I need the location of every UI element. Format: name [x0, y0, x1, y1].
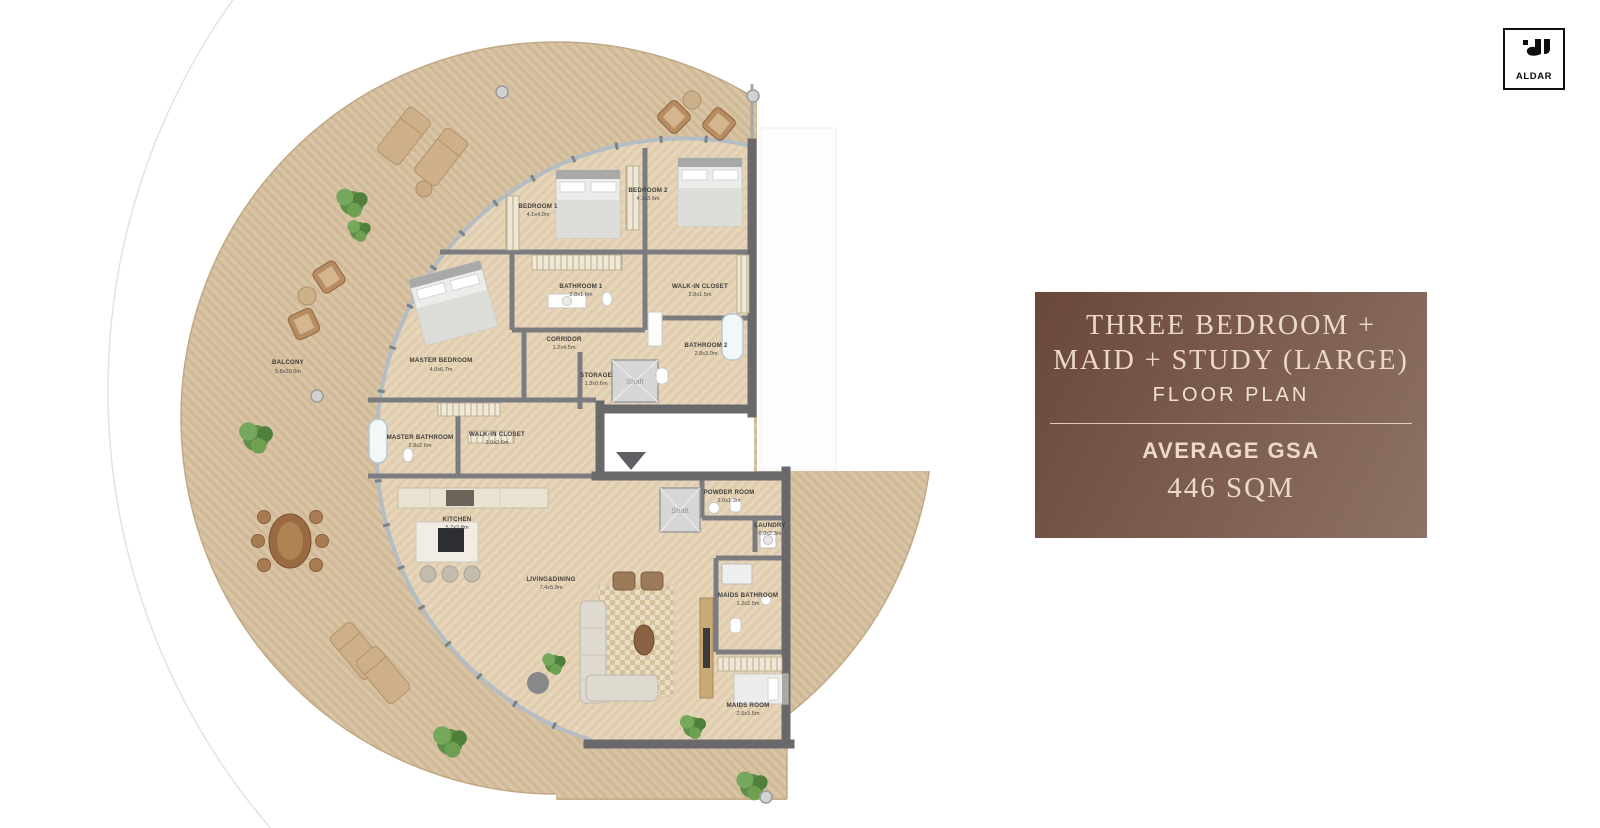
label-bedroom-2: BEDROOM 2: [628, 187, 668, 194]
label-kitchen: KITCHEN: [443, 516, 472, 523]
label-maids-bathroom: MAIDS BATHROOM: [718, 592, 778, 599]
dims-powder-room: 2.0x1.3m: [717, 498, 740, 504]
plan-subtitle: FLOOR PLAN: [1035, 384, 1427, 407]
label-master-bedroom: MASTER BEDROOM: [410, 357, 473, 364]
label-bathroom-2: BATHROOM 2: [684, 342, 727, 349]
gsa-value: 446 SQM: [1035, 472, 1427, 505]
plan-title-line2: MAID + STUDY (LARGE): [1035, 343, 1427, 378]
panel-divider: [1050, 423, 1412, 424]
dims-maids-room: 2.5x3.5m: [736, 711, 759, 717]
dims-bathroom-2: 2.8x3.0m: [694, 351, 717, 357]
entrance-notch: [602, 411, 754, 473]
ghosted-core-outline: [760, 128, 836, 470]
dims-master-bedroom: 4.0x6.7m: [429, 367, 452, 373]
balcony-dining-set: [252, 511, 329, 572]
aldar-wordmark: ALDAR: [1505, 71, 1563, 82]
aldar-logomark-icon: [1515, 37, 1553, 65]
shaft-lower-label: Shaft: [671, 506, 689, 515]
page: Shaft Shaft: [0, 0, 1600, 828]
label-maids-room: MAIDS ROOM: [727, 702, 770, 709]
shaft-lower: Shaft: [660, 488, 700, 532]
plan-title-line1: THREE BEDROOM +: [1035, 308, 1427, 343]
label-master-bathroom: MASTER BATHROOM: [387, 434, 454, 441]
info-panel: THREE BEDROOM + MAID + STUDY (LARGE) FLO…: [1035, 292, 1427, 538]
dims-maids-bathroom: 1.2x2.5m: [736, 601, 759, 607]
gsa-label: AVERAGE GSA: [1035, 438, 1427, 464]
label-laundry: LAUNDRY: [754, 522, 786, 529]
label-walkin-closet-1: WALK-IN CLOSET: [672, 283, 728, 290]
dims-master-bathroom: 2.8x2.6m: [408, 443, 431, 449]
study-desk: [700, 598, 713, 698]
dims-laundry: 0.9x2.3m: [758, 531, 781, 537]
label-bedroom-1: BEDROOM 1: [518, 203, 558, 210]
bed-maids: [734, 674, 788, 704]
shaft-upper-label: Shaft: [626, 377, 644, 386]
dims-storage: 1.3x0.6m: [584, 381, 607, 387]
label-bathroom-1: BATHROOM 1: [559, 283, 602, 290]
dims-corridor: 1.2x4.5m: [552, 345, 575, 351]
dims-bedroom-1: 4.1x4.0m: [526, 212, 549, 218]
dims-living-dining: 7.4x5.9m: [539, 585, 562, 591]
dims-walkin-closet-master: 3.0x2.6m: [485, 440, 508, 446]
shaft-upper: Shaft: [612, 360, 658, 402]
label-living-dining: LIVING&DINING: [526, 576, 575, 583]
label-corridor: CORRIDOR: [546, 336, 582, 343]
label-storage: STORAGE: [580, 372, 612, 379]
label-walkin-closet-master: WALK-IN CLOSET: [469, 431, 525, 438]
label-balcony: BALCONY: [272, 359, 305, 366]
dims-walkin-closet-1: 2.8x1.5m: [688, 292, 711, 298]
bed-bedroom-1: [556, 170, 620, 238]
dims-balcony: 5.8x20.0m: [275, 369, 301, 375]
label-powder-room: POWDER ROOM: [703, 489, 754, 496]
bed-bedroom-2: [678, 158, 742, 226]
dims-bathroom-1: 2.8x1.6m: [569, 292, 592, 298]
aldar-logo: ALDAR: [1503, 28, 1565, 90]
dims-kitchen: 5.7x2.8m: [445, 525, 468, 531]
dims-bedroom-2: 4.1x3.6m: [636, 196, 659, 202]
floor-plan: Shaft Shaft: [0, 0, 1000, 828]
